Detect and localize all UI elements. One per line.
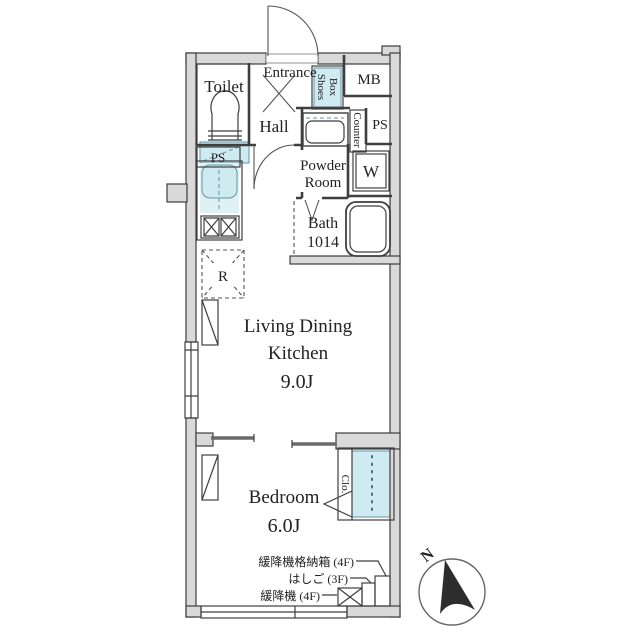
compass: N — [418, 545, 485, 625]
compass-north-label: N — [418, 545, 438, 566]
hatch-storage-box — [375, 576, 390, 606]
ps-right-label: PS — [372, 118, 388, 133]
ldk-label-2: Kitchen — [268, 343, 329, 364]
divider-stub-left — [196, 433, 213, 446]
hall-label: Hall — [259, 117, 289, 136]
stove-burners — [204, 218, 236, 236]
entrance-label: Entrance — [263, 65, 317, 81]
bath-ldk-wall — [290, 256, 400, 264]
floor-plan-drawing: N Toilet Entrance Hall Shoes Box MB PS P… — [0, 0, 640, 640]
refrigerator-label: R — [218, 269, 228, 285]
ps-left-label: PS — [211, 150, 225, 165]
compass-needle — [440, 560, 475, 614]
entrance-door-arc — [268, 6, 318, 56]
toilet-bowl — [211, 91, 239, 140]
shoes-box-label-2: Box — [327, 78, 339, 97]
floor-plan-page: N Toilet Entrance Hall Shoes Box MB PS P… — [0, 0, 640, 640]
closet-fill — [352, 451, 391, 517]
bedroom-label: Bedroom — [249, 487, 320, 508]
shaft-bedroom — [202, 455, 218, 500]
bathtub-outer — [346, 202, 390, 256]
entrance-threshold — [266, 54, 318, 63]
washer-label: W — [363, 162, 380, 181]
annotation-hatch-storage: 緩降機格納箱 (4F) — [258, 554, 354, 569]
bath-size-label: 1014 — [307, 234, 339, 251]
bath-label: Bath — [308, 215, 338, 232]
powder-room-label-1: Powder — [300, 158, 346, 174]
toilet-label: Toilet — [204, 77, 244, 96]
stove — [201, 216, 239, 238]
annotation-ladder: はしご (3F) — [288, 571, 348, 586]
closet-label: Clo. — [339, 475, 351, 494]
bedroom-size-label: 6.0J — [268, 515, 301, 537]
wall-protrusion — [167, 184, 187, 202]
window-left — [185, 342, 198, 418]
window-bottom — [201, 606, 347, 618]
powder-room-label-2: Room — [305, 175, 342, 191]
ldk-size-label: 9.0J — [281, 371, 314, 393]
mb-label: MB — [357, 72, 380, 88]
ladder-box — [362, 583, 375, 606]
sliding-door-ticks — [254, 434, 292, 448]
annotation-escape-device: 緩降機 (4F) — [260, 588, 320, 603]
shaft-ldk — [202, 300, 218, 345]
counter-label: Counter — [351, 112, 363, 148]
divider-stub-right — [336, 433, 400, 449]
shoes-box-label-1: Shoes — [315, 74, 327, 100]
hall-door-arc — [254, 145, 294, 189]
ldk-label-1: Living Dining — [244, 316, 353, 337]
toilet-seat-lines — [208, 131, 242, 140]
